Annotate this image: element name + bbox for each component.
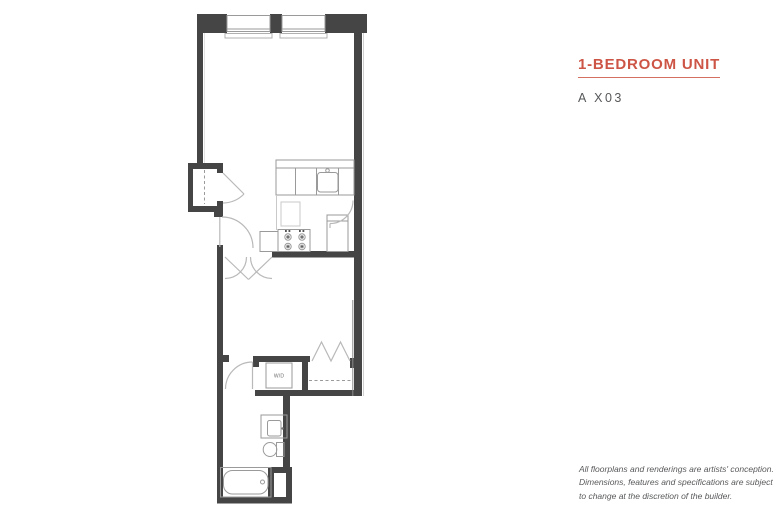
kitchen-counter	[276, 168, 354, 195]
unit-code: A X03	[578, 91, 773, 105]
bathtub-basin	[224, 471, 269, 495]
sink-faucet	[326, 169, 330, 173]
bathtub-drain	[261, 480, 265, 484]
disclaimer-line: Dimensions, features and specifications …	[579, 476, 774, 489]
upper-cabinets	[276, 160, 354, 168]
double-door-left-leaf	[225, 257, 249, 280]
kitchen	[260, 160, 354, 252]
info-panel: 1-BEDROOM UNIT A X03	[578, 56, 773, 105]
closet-dashed-lines	[205, 170, 353, 381]
vanity-sink	[268, 421, 282, 437]
wd-label: W/D	[274, 374, 285, 380]
disclaimer-line: All floorplans and renderings are artist…	[579, 463, 774, 476]
kitchen-door-arc	[330, 201, 353, 224]
toilet-tank	[277, 443, 285, 457]
vanity-faucet	[281, 427, 283, 429]
dishwasher	[281, 202, 300, 226]
page-title: 1-BEDROOM UNIT	[578, 56, 720, 78]
entry-door-arc	[222, 217, 253, 248]
kitchen-sink	[318, 173, 339, 193]
double-door-right-leaf	[249, 257, 273, 280]
page: W/D	[0, 0, 780, 517]
wd-closet: W/D	[266, 363, 292, 388]
bath-door-arc	[226, 362, 253, 389]
refrigerator	[327, 215, 348, 252]
disclaimer: All floorplans and renderings are artist…	[579, 463, 774, 503]
disclaimer-line: to change at the discretion of the build…	[579, 490, 774, 503]
bifold-doors	[312, 342, 350, 361]
walls	[188, 14, 367, 504]
toilet-bowl	[263, 443, 277, 457]
counter-left-of-stove	[260, 232, 278, 252]
closet-door-leaf	[223, 173, 244, 194]
bathroom	[221, 415, 288, 497]
window-sill	[225, 34, 272, 39]
window-sill	[280, 34, 327, 39]
closet-door-arc	[223, 194, 244, 203]
